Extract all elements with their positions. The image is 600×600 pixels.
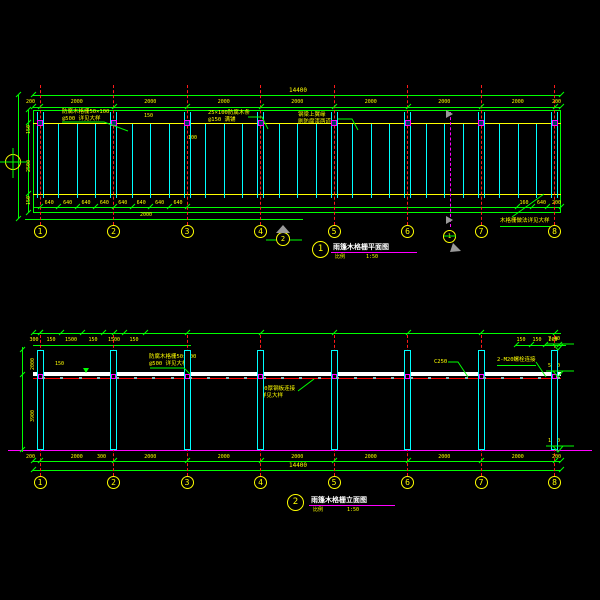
plan-section-arrow-bottom: [446, 216, 453, 224]
elev-note-6-leader: [448, 362, 468, 377]
plan-section-bubble-arrow: [450, 243, 461, 252]
leader-overlay: [0, 0, 600, 600]
elev-level-triangles: [553, 344, 563, 452]
plan-note-1-leader: [62, 122, 128, 131]
section-arrows: [276, 110, 461, 252]
plan-note-4-leader: [512, 194, 544, 217]
elev-note-7-leader: [536, 362, 546, 377]
axis-target-cross: [0, 148, 27, 178]
elev-level-baselines: [546, 344, 574, 446]
plan-note-3-leader: [338, 119, 358, 130]
leader-lines: [0, 117, 574, 452]
plan-view-marker-arrow: [276, 225, 290, 233]
elev-note-5-leader: [150, 368, 190, 374]
plan-section-arrow-top: [446, 110, 453, 118]
plan-note-2-leader: [248, 117, 268, 129]
elev-weld-mark: [83, 368, 89, 373]
elev-note-8-leader: [298, 379, 314, 391]
